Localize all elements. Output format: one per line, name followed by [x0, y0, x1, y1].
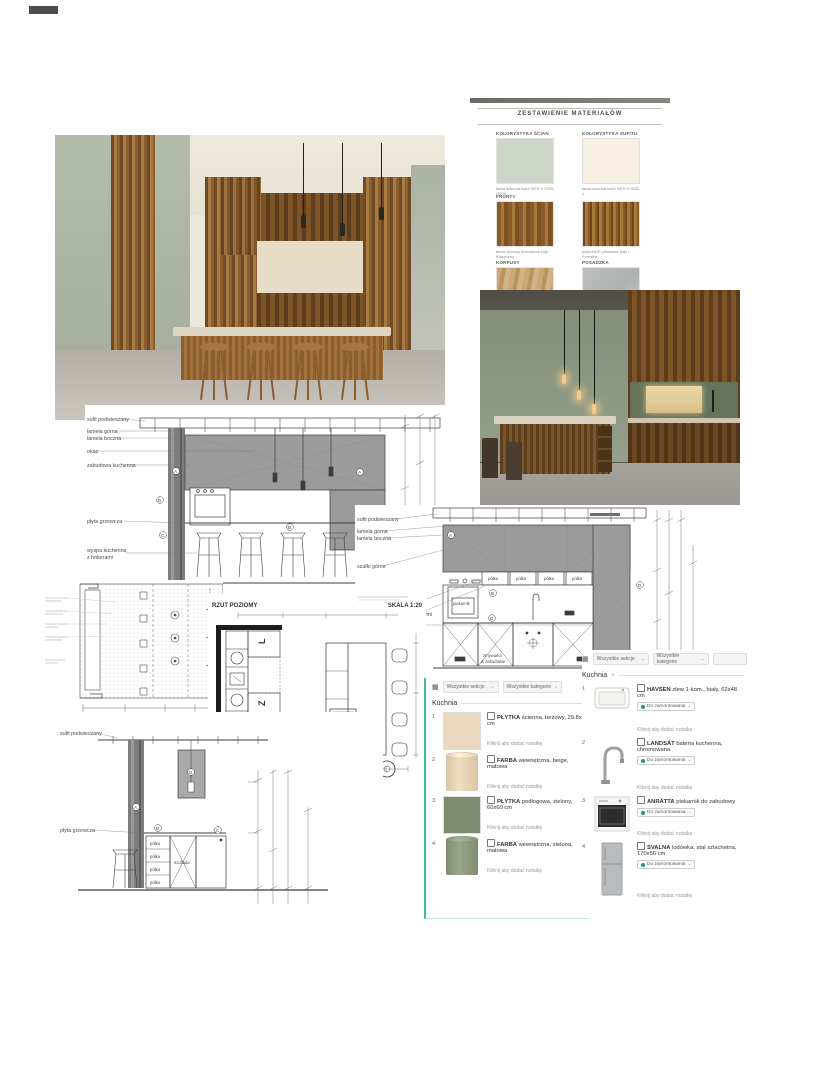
- drawing-label: sufit podwieszany: [60, 731, 102, 737]
- pendant-light: [577, 390, 581, 400]
- pendant-cord: [381, 143, 382, 207]
- item-number: 3: [582, 796, 592, 837]
- item-title: HAVSEN zlew 1-kom., biały, 62x48 cm: [637, 684, 744, 699]
- add-note-link[interactable]: Kliknij aby dodać notatkę: [487, 868, 589, 874]
- swatch-ribbed: płyta MDF ryflowana Dąb / Forestile: [582, 194, 642, 259]
- item-number: 3: [432, 796, 442, 834]
- item-number: 2: [582, 738, 592, 791]
- drawing-label: lamela boczna: [357, 536, 391, 542]
- bar-stool: [341, 343, 369, 401]
- filter-label: Wszystkie kategorie: [657, 653, 698, 665]
- divider: [461, 703, 589, 704]
- item-number: 1: [432, 712, 442, 750]
- faucet-thumbnail: [592, 738, 632, 791]
- status-label: Do zamontowania: [647, 862, 685, 867]
- item-title: FARBA wewnętrzna, zielona, matowa: [487, 839, 589, 854]
- product-row[interactable]: 3 ANRÄTTA piekarnik do zabudowy Do zamon…: [582, 796, 744, 837]
- shelf-label: półka: [150, 867, 161, 872]
- chevron-down-icon: ⌄: [554, 684, 558, 690]
- window-fragment: [29, 6, 58, 14]
- tile-thumbnail: [442, 796, 482, 834]
- product-row[interactable]: 3 PŁYTKA podłogowa, zielony, 60x60 cm Kl…: [432, 796, 589, 834]
- section-title: Kuchnia: [432, 700, 457, 707]
- product-type-icon: [637, 684, 645, 692]
- product-panel-materials: ▦ Wszystkie sekcje⌄ Wszystkie kategorie⌄…: [424, 678, 589, 919]
- chevron-down-icon: ⌄: [640, 656, 644, 662]
- pendant-cord: [342, 143, 343, 223]
- paint-can-thumbnail: [442, 839, 482, 875]
- status-dot: [641, 705, 645, 709]
- island-elevation-drawing: sufit podwieszany płyta grzewcza półka p…: [58, 712, 383, 912]
- section-marker: A: [134, 805, 137, 810]
- tile-thumbnail: [442, 712, 482, 750]
- hood: [221, 177, 261, 255]
- add-note-link[interactable]: Kliknij aby dodać notatkę: [637, 893, 744, 899]
- pendant-light: [301, 215, 306, 228]
- filter-label: Wszystkie sekcje: [447, 684, 485, 690]
- appliance-letter-fridge: L: [257, 638, 267, 644]
- product-row[interactable]: 2 FARBA wewnętrzna, beige, matowa Klikni…: [432, 755, 589, 791]
- board-top-band: [470, 98, 670, 103]
- product-row[interactable]: 1 HAVSEN zlew 1-kom., biały, 62x48 cm Do…: [582, 684, 744, 733]
- bar-stool: [294, 343, 322, 401]
- grid-icon: ▦: [432, 683, 439, 691]
- truncated-filter[interactable]: [713, 653, 747, 665]
- sink-thumbnail: [592, 684, 632, 733]
- drawer-label: szuflada: [174, 860, 190, 865]
- categories-filter-dropdown[interactable]: Wszystkie kategorie⌄: [653, 653, 709, 665]
- add-section-button[interactable]: +: [611, 673, 615, 679]
- swatch-color-cream: [582, 138, 640, 184]
- lit-niche: [646, 386, 702, 413]
- pendant-light: [592, 404, 596, 414]
- sections-filter-dropdown[interactable]: Wszystkie sekcje⌄: [443, 681, 499, 693]
- item-title: FARBA wewnętrzna, beige, matowa: [487, 755, 589, 770]
- status-dot: [641, 811, 645, 815]
- item-title: LANDSÅT bateria kuchenna, chromowana: [637, 738, 744, 753]
- item-title: PŁYTKA ścienna, beżowy, 29.8x60 cm: [487, 712, 589, 727]
- section-marker: B: [490, 616, 493, 621]
- base-cabinets: [257, 293, 363, 327]
- dishwasher-label: zmywarka: [483, 653, 503, 658]
- drawing-label: lamela boczna: [87, 436, 121, 442]
- fridge-thumbnail: [592, 842, 632, 899]
- backsplash: [257, 241, 363, 293]
- faucet: [712, 390, 714, 412]
- item-title: PŁYTKA podłogowa, zielony, 60x60 cm: [487, 796, 589, 811]
- pendant-light: [562, 374, 566, 384]
- drawing-label: okap: [87, 449, 99, 455]
- product-type-icon: [637, 796, 645, 804]
- add-note-link[interactable]: Kliknij aby dodać notatkę: [637, 727, 744, 733]
- oven-thumbnail: [592, 796, 632, 837]
- chevron-down-icon: ⌄: [490, 684, 494, 690]
- right-wall: [411, 165, 445, 355]
- item-number: 1: [582, 684, 592, 733]
- swatch-label: KORPUSY: [496, 260, 556, 265]
- chevron-down-icon: ⌄: [687, 704, 691, 709]
- section-title: Kuchnia: [582, 672, 607, 679]
- bar-stool: [200, 343, 228, 401]
- shelf-label: półka: [150, 880, 161, 885]
- pendant-cord: [594, 310, 595, 404]
- swatch-wood-veneer: [496, 201, 554, 247]
- product-type-icon: [637, 738, 645, 746]
- pendant-cord: [564, 310, 565, 374]
- item-title: SVALNA lodówka, stal szlachetna, 170x56 …: [637, 842, 744, 857]
- swatch-label: [582, 194, 642, 199]
- categories-filter-dropdown[interactable]: Wszystkie kategorie⌄: [503, 681, 563, 693]
- product-type-icon: [487, 755, 495, 763]
- ceiling-detail-drawing: [45, 580, 223, 718]
- swatch-caption: płyta MDF ryflowana Dąb / Forestile: [582, 249, 642, 259]
- oven-label: piekarnik: [453, 601, 471, 606]
- status-dropdown[interactable]: Do zamontowania⌄: [637, 756, 695, 765]
- section-heading: Kuchnia: [432, 700, 589, 707]
- status-dropdown[interactable]: Do zamontowania⌄: [637, 702, 695, 711]
- plan-scale: SKALA 1:20: [388, 603, 423, 609]
- add-note-link[interactable]: Kliknij aby dodać notatkę: [637, 785, 744, 791]
- item-number: 4: [582, 842, 592, 899]
- filter-bar: ▦ Wszystkie sekcje⌄ Wszystkie kategorie⌄: [582, 652, 744, 666]
- drawing-label: szafki górne: [357, 564, 386, 570]
- paint-can-thumbnail: [442, 755, 482, 791]
- section-marker: B: [288, 525, 291, 530]
- wood-slat-column: [111, 135, 155, 367]
- chevron-down-icon: ⌄: [687, 862, 691, 867]
- bar-stool: [247, 343, 275, 401]
- divider: [619, 675, 744, 676]
- drawing-label: wyspa kuchenna: [87, 548, 127, 554]
- render-kitchen-front: [55, 135, 445, 420]
- product-type-icon: [487, 712, 495, 720]
- product-row[interactable]: 4 FARBA wewnętrzna, zielona, matowa Klik…: [432, 839, 589, 875]
- drawing-label: sufit podwieszany: [87, 417, 129, 423]
- section-marker: A: [174, 469, 177, 474]
- drawing-label: lamela górna: [357, 529, 388, 535]
- sections-filter-dropdown[interactable]: Wszystkie sekcje⌄: [593, 653, 649, 665]
- item-title: ANRÄTTA piekarnik do zabudowy: [637, 796, 744, 805]
- drawing-label: płyta grzewcza: [87, 519, 122, 525]
- pendant-cord: [579, 310, 580, 390]
- render-kitchen-evening: [480, 290, 740, 525]
- product-row[interactable]: 4 SVALNA lodówka, stal szlachetna, 170x5…: [582, 842, 744, 899]
- shelf-label: półka: [488, 576, 499, 581]
- drawing-label: z hokerami: [87, 555, 113, 561]
- pendant-light: [340, 223, 345, 236]
- base-cabinets: [628, 423, 740, 465]
- swatch-ceiling: KOLORYSTYKA SUFITU farba ścienna kolor N…: [582, 131, 642, 196]
- product-type-icon: [637, 842, 645, 850]
- swatch-fronts: FRONTY fornir dębowy Woodwork Dąb Klasyc…: [496, 194, 556, 259]
- swatch-color-sage: [496, 138, 554, 184]
- island-countertop: [494, 416, 616, 424]
- section-marker: B: [491, 591, 494, 596]
- section-marker: A: [358, 470, 361, 475]
- upper-cabinets: [257, 193, 363, 241]
- island-countertop: [173, 327, 391, 336]
- status-dropdown[interactable]: Do zamontowania⌄: [637, 860, 695, 869]
- chevron-down-icon: ⌄: [687, 810, 691, 815]
- drawing-label: lamela górna: [87, 429, 118, 435]
- shelf-label: półka: [544, 576, 555, 581]
- dishwasher-label: w zabudowie: [481, 659, 506, 664]
- filter-label: Wszystkie sekcje: [597, 656, 635, 662]
- product-type-icon: [487, 796, 495, 804]
- bar-stool-silhouette: [506, 442, 522, 480]
- add-note-link[interactable]: Kliknij aby dodać notatkę: [487, 825, 589, 831]
- item-number: 4: [432, 839, 442, 875]
- drawing-label: zabudowa kuchenna: [87, 463, 136, 469]
- product-type-icon: [487, 839, 495, 847]
- swatch-walls: KOLORYSTYKA ŚCIAN farba ścienna kolor NC…: [496, 131, 556, 196]
- filter-bar: ▦ Wszystkie sekcje⌄ Wszystkie kategorie⌄: [432, 680, 589, 694]
- section-marker: A: [449, 533, 452, 538]
- divider: [478, 108, 662, 109]
- add-note-link[interactable]: Kliknij aby dodać notatkę: [637, 831, 744, 837]
- shelf-label: półka: [516, 576, 527, 581]
- swatch-wood-ribbed: [582, 201, 640, 247]
- chevron-down-icon: ⌄: [687, 758, 691, 763]
- add-note-link[interactable]: Kliknij aby dodać notatkę: [487, 784, 589, 790]
- chevron-down-icon: ⌄: [700, 656, 704, 662]
- pendant-cord: [303, 143, 304, 215]
- add-note-link[interactable]: Kliknij aby dodać notatkę: [487, 741, 589, 747]
- section-marker: B: [156, 826, 159, 831]
- island-shelves: [598, 426, 612, 472]
- bar-stool-silhouette: [482, 438, 498, 478]
- pendant-light: [379, 207, 384, 220]
- status-label: Do zamontowania: [647, 704, 685, 709]
- status-dot: [641, 863, 645, 867]
- swatch-caption: fornir dębowy Woodwork Dąb Klasyczny: [496, 249, 556, 259]
- appliance-letter-dishwasher: Z: [257, 700, 267, 706]
- section-heading: Kuchnia +: [582, 672, 744, 679]
- swatch-label: POSADZKA: [582, 260, 642, 265]
- filter-label: Wszystkie kategorie: [507, 684, 551, 690]
- moodboard-canvas: ZESTAWIENIE MATERIAŁÓW KOLORYSTYKA ŚCIAN…: [0, 0, 832, 1080]
- swatch-label: KOLORYSTYKA ŚCIAN: [496, 131, 556, 136]
- materials-board: ZESTAWIENIE MATERIAŁÓW KOLORYSTYKA ŚCIAN…: [470, 98, 670, 300]
- status-label: Do zamontowania: [647, 758, 685, 763]
- grid-icon: ▦: [582, 655, 589, 663]
- plan-title: RZUT POZIOMY: [212, 603, 257, 609]
- swatch-label: FRONTY: [496, 194, 556, 199]
- status-label: Do zamontowania: [647, 810, 685, 815]
- item-number: 2: [432, 755, 442, 791]
- product-row[interactable]: 1 PŁYTKA ścienna, beżowy, 29.8x60 cm Kli…: [432, 712, 589, 750]
- shelf-label: półka: [150, 841, 161, 846]
- product-panel-appliances: ▦ Wszystkie sekcje⌄ Wszystkie kategorie⌄…: [582, 650, 744, 910]
- drawing-label: płyta grzewcza: [60, 828, 95, 834]
- divider: [478, 124, 662, 125]
- shelf-label: półka: [572, 576, 583, 581]
- shelf-label: półka: [150, 854, 161, 859]
- drawing-label: sufit podwieszany: [357, 517, 399, 523]
- board-title: ZESTAWIENIE MATERIAŁÓW: [470, 111, 670, 117]
- swatch-label: KOLORYSTYKA SUFITU: [582, 131, 642, 136]
- status-dot: [641, 759, 645, 763]
- product-row[interactable]: 2 LANDSÅT bateria kuchenna, chromowana D…: [582, 738, 744, 791]
- status-dropdown[interactable]: Do zamontowania⌄: [637, 808, 695, 817]
